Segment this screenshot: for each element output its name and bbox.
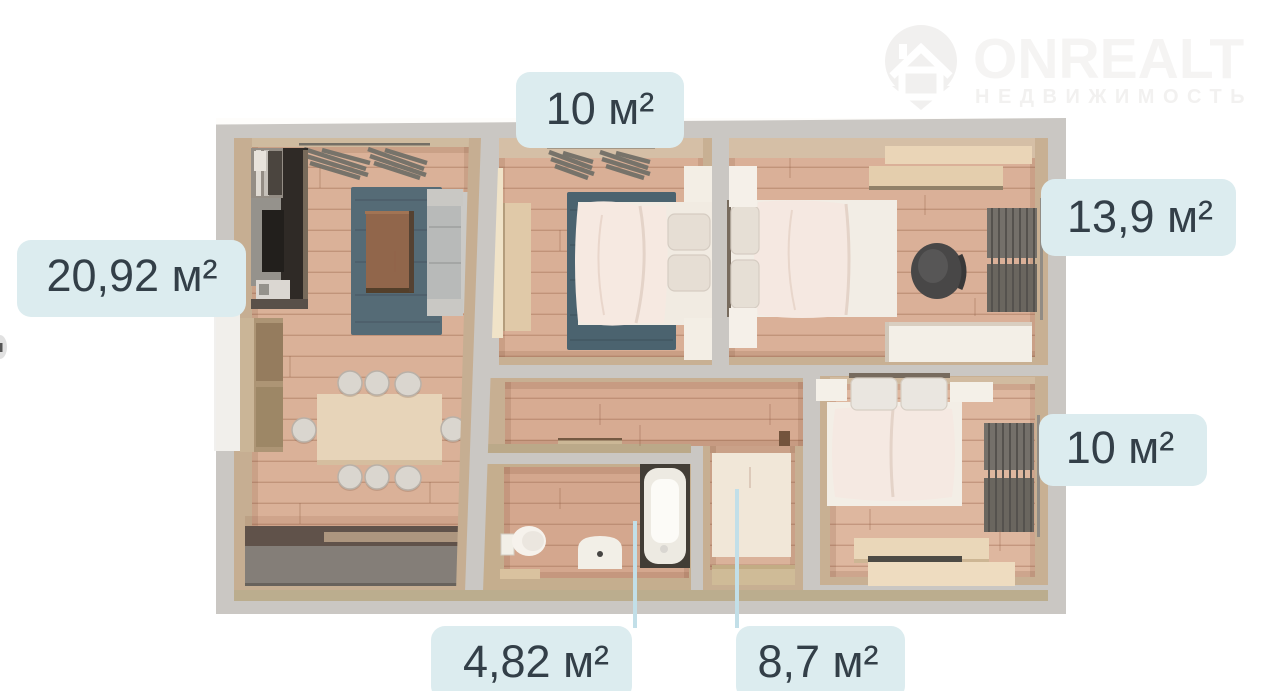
svg-text:13,9 м²: 13,9 м²	[1067, 191, 1213, 242]
svg-text:20,92 м²: 20,92 м²	[46, 250, 217, 301]
svg-text:ONREALT: ONREALT	[973, 27, 1244, 91]
svg-text:8,7 м²: 8,7 м²	[758, 636, 879, 687]
svg-text:4,82 м²: 4,82 м²	[463, 636, 609, 687]
svg-text:НЕДВИЖИМОСТЬ: НЕДВИЖИМОСТЬ	[975, 86, 1253, 108]
svg-text:10 м²: 10 м²	[1066, 422, 1174, 473]
svg-text:10 м²: 10 м²	[546, 83, 654, 134]
